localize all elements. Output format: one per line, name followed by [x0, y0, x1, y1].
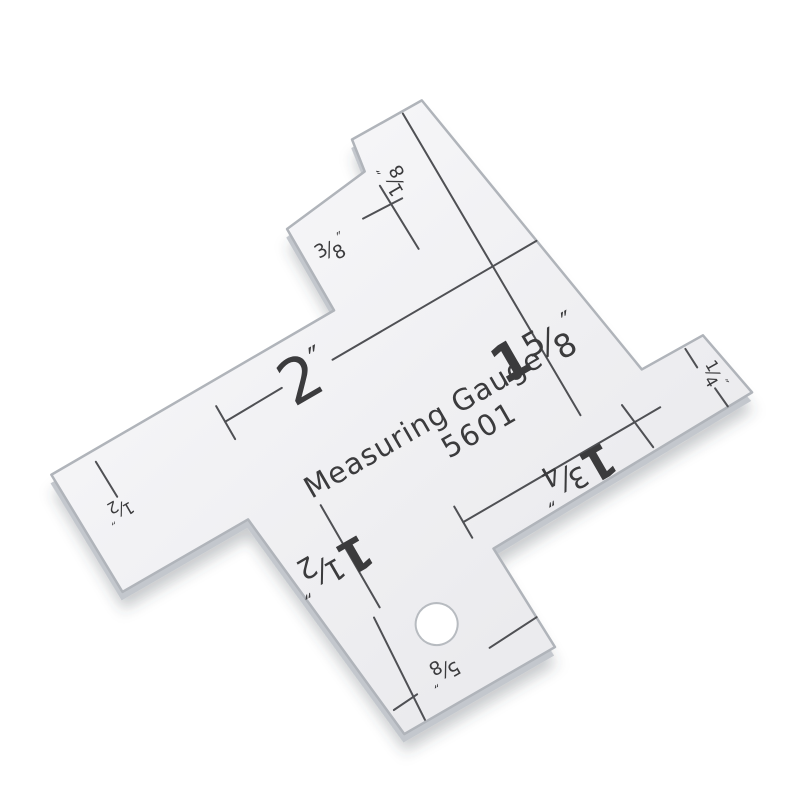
product-photo: 1⁄8″3⁄8″2″15⁄8″1⁄4″1⁄2″11⁄2″13⁄4″5⁄8″Mea…: [0, 0, 800, 800]
measuring-gauge-photo-host: 1⁄8″3⁄8″2″15⁄8″1⁄4″1⁄2″11⁄2″13⁄4″5⁄8″Mea…: [0, 0, 800, 800]
measuring-gauge-svg: 1⁄8″3⁄8″2″15⁄8″1⁄4″1⁄2″11⁄2″13⁄4″5⁄8″Mea…: [0, 0, 800, 800]
